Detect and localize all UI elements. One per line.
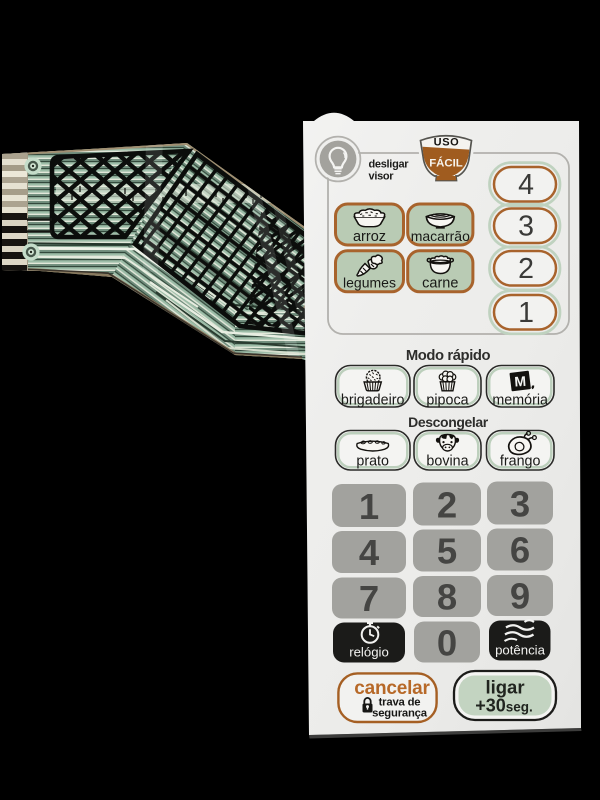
svg-text:7: 7 bbox=[359, 578, 379, 619]
svg-text:USO: USO bbox=[434, 136, 460, 148]
svg-text:4: 4 bbox=[518, 169, 534, 201]
svg-text:brigadeiro: brigadeiro bbox=[341, 393, 405, 409]
svg-text:1: 1 bbox=[518, 297, 534, 329]
svg-text:macarrão: macarrão bbox=[411, 228, 470, 244]
svg-text:carne: carne bbox=[422, 276, 458, 292]
svg-text:2: 2 bbox=[437, 485, 457, 526]
svg-text:3: 3 bbox=[518, 211, 534, 243]
svg-text:prato: prato bbox=[356, 454, 389, 470]
svg-text:legumes: legumes bbox=[343, 275, 396, 291]
svg-text:Modo rápido: Modo rápido bbox=[406, 348, 491, 364]
svg-text:6: 6 bbox=[510, 530, 530, 571]
svg-text:3: 3 bbox=[510, 484, 530, 525]
svg-text:9: 9 bbox=[510, 576, 530, 617]
svg-text:Descongelar: Descongelar bbox=[408, 414, 489, 430]
svg-text:relógio: relógio bbox=[349, 645, 389, 660]
svg-text:frango: frango bbox=[500, 454, 541, 470]
svg-text:segurança: segurança bbox=[372, 708, 428, 720]
svg-text:M: M bbox=[514, 373, 527, 390]
svg-text:arroz: arroz bbox=[353, 229, 386, 245]
svg-text:2: 2 bbox=[518, 253, 534, 285]
svg-text:desligar: desligar bbox=[369, 159, 410, 171]
svg-text:ligar: ligar bbox=[485, 677, 524, 698]
svg-text:potência: potência bbox=[495, 643, 546, 658]
svg-text:pipoca: pipoca bbox=[426, 393, 468, 409]
svg-text:1: 1 bbox=[359, 486, 379, 527]
svg-text:5: 5 bbox=[437, 531, 457, 572]
svg-text:visor: visor bbox=[369, 171, 395, 183]
svg-text:8: 8 bbox=[437, 577, 457, 618]
svg-text:0: 0 bbox=[437, 623, 457, 664]
svg-text:4: 4 bbox=[359, 532, 380, 573]
svg-text:FÁCIL: FÁCIL bbox=[429, 157, 463, 170]
svg-text:bovina: bovina bbox=[426, 454, 468, 470]
svg-text:memória: memória bbox=[492, 393, 548, 409]
